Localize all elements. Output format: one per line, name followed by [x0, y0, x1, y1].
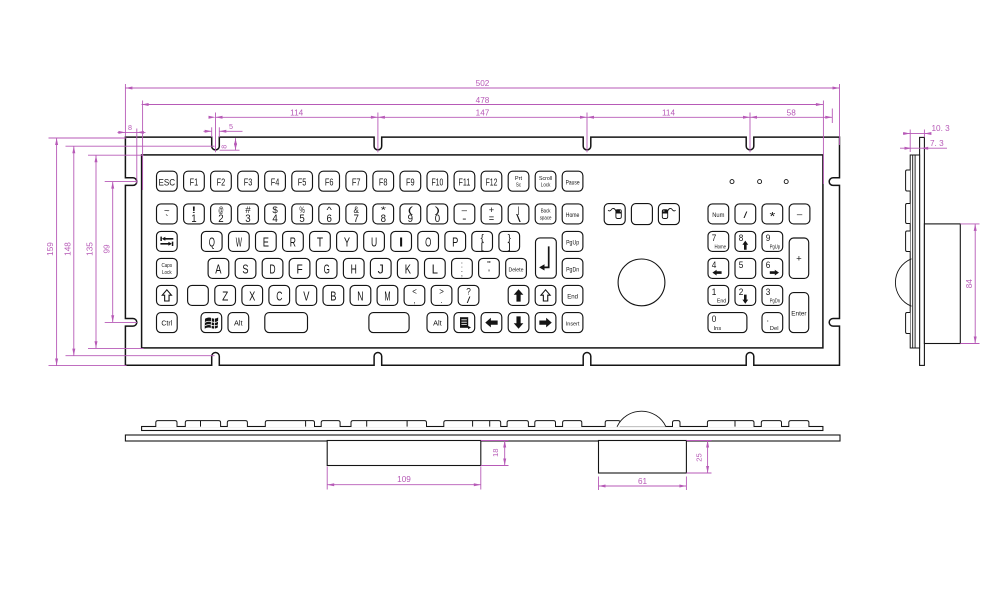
svg-text:Sc: Sc — [516, 183, 521, 189]
svg-text:502: 502 — [476, 79, 490, 88]
svg-text:F5: F5 — [298, 178, 307, 189]
svg-text:J: J — [378, 263, 384, 277]
svg-text:147: 147 — [476, 108, 490, 117]
svg-text:Lock: Lock — [162, 270, 172, 276]
svg-text:V: V — [303, 290, 310, 304]
svg-text:1: 1 — [191, 213, 196, 225]
svg-text:9: 9 — [766, 233, 771, 243]
svg-text:4: 4 — [712, 260, 717, 270]
svg-text:10. 3: 10. 3 — [932, 124, 951, 133]
svg-text:F4: F4 — [271, 178, 280, 189]
svg-text:.: . — [767, 314, 770, 324]
svg-text:8: 8 — [381, 213, 386, 225]
svg-text:148: 148 — [63, 242, 72, 256]
svg-text:PgDn: PgDn — [566, 268, 579, 274]
svg-text:F2: F2 — [217, 178, 226, 189]
svg-text:25: 25 — [695, 453, 704, 461]
svg-text:18: 18 — [491, 449, 500, 457]
svg-text:5: 5 — [299, 213, 304, 225]
svg-text:E: E — [263, 236, 269, 250]
svg-text:Back: Back — [541, 209, 551, 215]
svg-text:End: End — [567, 294, 578, 301]
svg-text:R: R — [290, 236, 296, 250]
svg-text:Home: Home — [566, 213, 580, 219]
svg-text:F3: F3 — [244, 178, 253, 189]
svg-text:Q: Q — [209, 236, 215, 250]
svg-text:7: 7 — [354, 213, 359, 225]
svg-text:Home: Home — [715, 244, 727, 250]
svg-text:PgDn: PgDn — [770, 298, 781, 304]
svg-text:;: ; — [461, 267, 463, 278]
svg-text:Pause: Pause — [566, 179, 580, 186]
svg-text:S: S — [242, 263, 248, 277]
svg-text:Prt: Prt — [515, 176, 523, 182]
svg-text:0: 0 — [712, 314, 717, 324]
svg-text:I: I — [398, 236, 404, 250]
svg-text:F10: F10 — [432, 178, 444, 189]
svg-text:,: , — [414, 294, 416, 305]
svg-text:T: T — [317, 236, 323, 250]
svg-text:*: * — [770, 209, 776, 223]
svg-text:9: 9 — [408, 213, 413, 225]
svg-text:.: . — [441, 294, 443, 305]
svg-text:G: G — [324, 263, 330, 277]
svg-text:Scroll: Scroll — [539, 176, 552, 182]
svg-text:Delete: Delete — [509, 268, 524, 274]
svg-text:Insert: Insert — [566, 322, 580, 328]
svg-text:135: 135 — [86, 242, 95, 256]
svg-text:7: 7 — [712, 233, 717, 243]
svg-text:M: M — [384, 290, 390, 304]
svg-text:2: 2 — [218, 213, 223, 225]
svg-text:D: D — [269, 263, 275, 277]
svg-text:=: = — [489, 213, 494, 225]
svg-text:8: 8 — [739, 233, 744, 243]
svg-text:0: 0 — [435, 213, 440, 225]
svg-text:Y: Y — [344, 236, 351, 250]
svg-text:F1: F1 — [190, 178, 199, 189]
svg-text:`: ` — [165, 214, 168, 225]
svg-text:Alt: Alt — [234, 319, 243, 328]
svg-text:4: 4 — [272, 213, 277, 225]
svg-text:W: W — [236, 236, 242, 250]
svg-text:478: 478 — [476, 96, 490, 105]
svg-text:': ' — [488, 267, 490, 278]
svg-text:Ins: Ins — [714, 326, 722, 332]
svg-text:114: 114 — [290, 108, 303, 117]
svg-text:Z: Z — [222, 290, 228, 304]
svg-text:F8: F8 — [379, 178, 388, 189]
svg-text:109: 109 — [397, 475, 411, 484]
svg-text:F: F — [297, 263, 303, 277]
svg-text:P: P — [452, 236, 458, 250]
svg-text:5: 5 — [229, 122, 233, 131]
svg-text:/: / — [744, 209, 748, 220]
svg-text:K: K — [405, 263, 412, 277]
svg-text:L: L — [432, 263, 438, 277]
svg-text:Num: Num — [712, 212, 724, 219]
svg-text:3: 3 — [766, 287, 771, 297]
svg-text:5: 5 — [739, 260, 744, 270]
svg-text:Caps: Caps — [162, 263, 173, 269]
svg-text:C: C — [276, 290, 282, 304]
svg-text:114: 114 — [662, 108, 675, 117]
svg-text:8: 8 — [220, 145, 229, 149]
svg-text:58: 58 — [787, 108, 797, 117]
svg-text:F12: F12 — [486, 178, 498, 189]
svg-text:U: U — [371, 236, 377, 250]
svg-text:8: 8 — [128, 123, 132, 132]
svg-text:2: 2 — [739, 287, 744, 297]
svg-text:61: 61 — [638, 477, 648, 486]
svg-text:84: 84 — [965, 279, 974, 289]
svg-text:Lock: Lock — [541, 183, 551, 189]
svg-text:N: N — [357, 290, 363, 304]
svg-text:]: ] — [508, 240, 511, 251]
svg-text:F9: F9 — [406, 178, 415, 189]
svg-text:Del: Del — [770, 326, 779, 332]
svg-text:–: – — [797, 209, 802, 219]
svg-text:PgUp: PgUp — [566, 241, 580, 247]
svg-text:6: 6 — [327, 213, 332, 225]
svg-text:+: + — [796, 254, 802, 265]
svg-text:F7: F7 — [352, 178, 361, 189]
svg-text:B: B — [330, 290, 336, 304]
svg-text:A: A — [215, 263, 222, 277]
svg-text:/: / — [467, 294, 471, 305]
svg-text:7. 3: 7. 3 — [930, 139, 944, 148]
svg-text:Ctrl: Ctrl — [161, 319, 172, 328]
svg-text:1: 1 — [712, 287, 717, 297]
svg-text:Alt: Alt — [433, 319, 442, 328]
svg-text:O: O — [425, 236, 431, 250]
svg-text:PgUp: PgUp — [770, 244, 781, 250]
svg-text:X: X — [249, 290, 256, 304]
svg-text:3: 3 — [245, 213, 250, 225]
svg-text:159: 159 — [46, 242, 55, 256]
svg-text:space: space — [540, 215, 552, 221]
svg-text:Enter: Enter — [791, 310, 807, 317]
svg-text:F11: F11 — [459, 178, 471, 189]
svg-text:ESC: ESC — [159, 177, 176, 188]
svg-text:End: End — [717, 298, 726, 304]
svg-text:[: [ — [481, 240, 484, 251]
svg-text:\: \ — [516, 213, 521, 225]
svg-text:6: 6 — [766, 260, 771, 270]
svg-text:-: - — [462, 213, 467, 225]
svg-text:99: 99 — [102, 244, 111, 254]
svg-text:F6: F6 — [325, 178, 334, 189]
svg-text:H: H — [351, 263, 357, 277]
